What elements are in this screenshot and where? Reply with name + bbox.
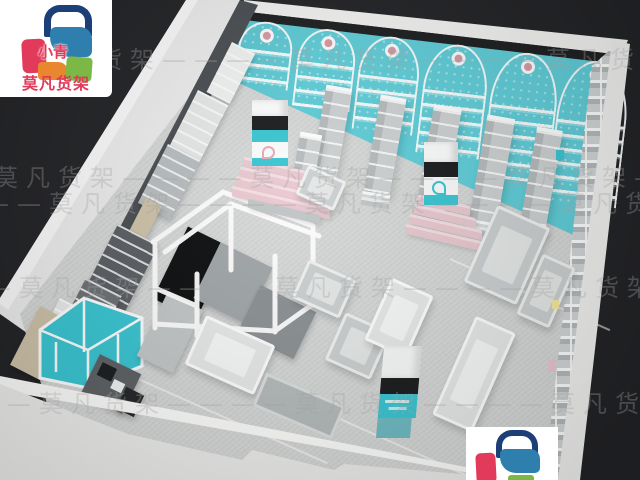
logo-name-text: 莫凡货架 [0, 70, 112, 94]
graffiti-mark [388, 407, 406, 410]
display-column-1 [252, 100, 288, 166]
column-cap [252, 100, 288, 116]
bag-green-block [508, 475, 534, 480]
medallion-logo-icon [259, 28, 275, 44]
medallion-logo-icon [451, 51, 467, 67]
medallion-logo-icon [321, 35, 337, 51]
display-column-2 [424, 142, 458, 205]
bag-mark-icon [262, 146, 275, 159]
column-teal-base [252, 158, 288, 166]
graffiti-mark [385, 400, 409, 403]
column-logo-panel [252, 142, 288, 158]
column-logo-panel [424, 177, 458, 195]
column-cap [424, 142, 458, 162]
column-black-band [252, 116, 288, 130]
merch-chip [556, 150, 564, 160]
column-teal-band [252, 130, 288, 142]
column-black-band [380, 378, 419, 394]
store-render-scene: ——莫凡货架————莫凡货架————莫凡货架————莫凡货架————莫凡货架——… [0, 0, 640, 480]
merch-chip [548, 360, 556, 372]
brand-logo: 小青 莫凡货架 [0, 0, 112, 97]
column-teal-base [424, 195, 458, 205]
merch-chip [552, 300, 559, 309]
bag-blue-block [500, 449, 540, 473]
column-teal-graffiti-band [378, 394, 418, 418]
column-cap [381, 346, 422, 378]
brand-logo-small [466, 427, 558, 480]
column-black-band [424, 162, 458, 177]
bag-mark-icon [432, 181, 446, 195]
logo-subtext: 小青 [38, 41, 68, 62]
medallion-logo-icon [520, 59, 536, 75]
column-teal-base [376, 418, 412, 438]
entrance-teal-column [376, 346, 422, 438]
bag-pink-block [475, 452, 497, 480]
medallion-logo-icon [384, 43, 400, 59]
